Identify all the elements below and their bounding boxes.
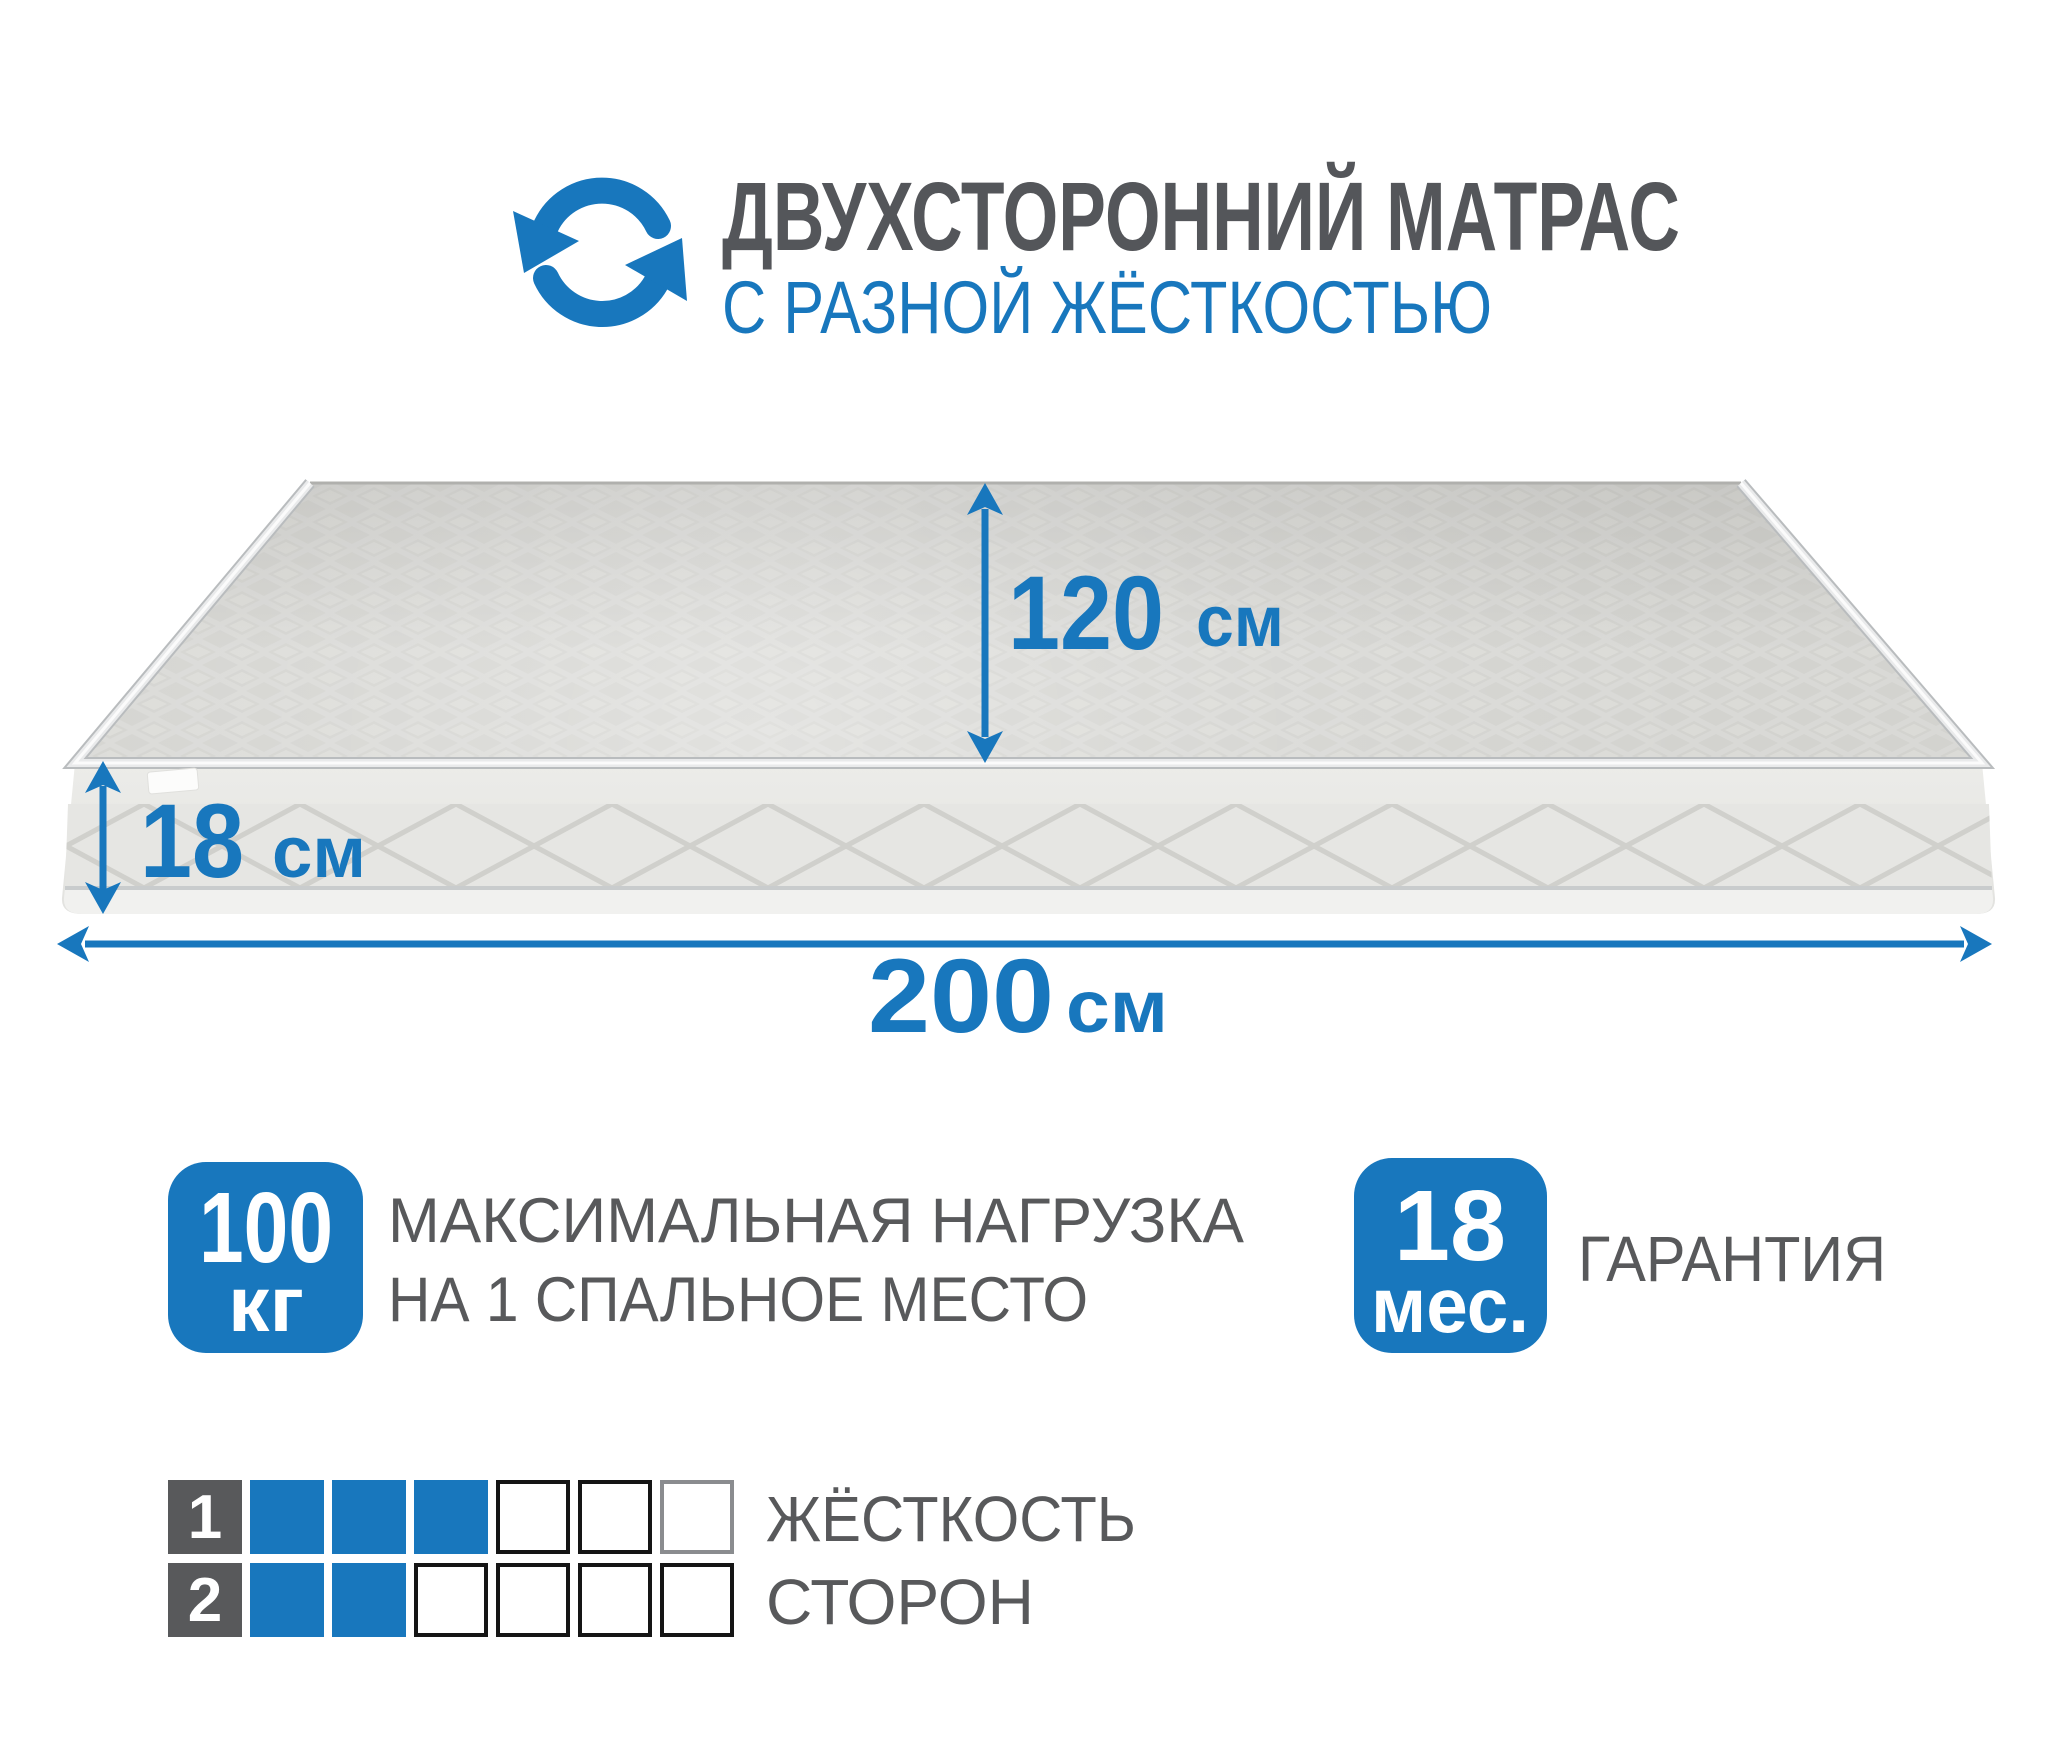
firmness-cell-filled: [250, 1563, 324, 1637]
firmness-row-number: 2: [188, 1566, 222, 1635]
rotate-arrows-icon: [513, 191, 687, 314]
dimension-width: 200 см: [57, 926, 1992, 1055]
warranty-feature: 18 мес. ГАРАНТИЯ: [1354, 1158, 1886, 1353]
max-load-feature: 100 кг МАКСИМАЛЬНАЯ НАГРУЗКА НА 1 СПАЛЬН…: [168, 1162, 1244, 1353]
firmness-row-number: 1: [188, 1483, 222, 1552]
firmness-cell-empty: [580, 1482, 650, 1552]
firmness-label-line2: СТОРОН: [766, 1566, 1034, 1638]
width-value: 200: [868, 938, 1054, 1055]
firmness-cell-empty: [416, 1565, 486, 1635]
height-value: 18: [140, 783, 244, 900]
max-load-unit: кг: [228, 1260, 304, 1348]
page-title: ДВУХСТОРОННИЙ МАТРАС: [722, 162, 1680, 271]
firmness-cell-empty: [662, 1482, 732, 1552]
firmness-cell-filled: [332, 1480, 406, 1554]
header: ДВУХСТОРОННИЙ МАТРАС С РАЗНОЙ ЖЁСТКОСТЬЮ: [513, 162, 1680, 349]
firmness-cell-empty: [580, 1565, 650, 1635]
warranty-unit: мес.: [1371, 1261, 1529, 1349]
height-unit: см: [272, 813, 366, 893]
firmness-cell-filled: [332, 1563, 406, 1637]
width-unit: см: [1066, 965, 1168, 1048]
mattress-infographic: ДВУХСТОРОННИЙ МАТРАС С РАЗНОЙ ЖЁСТКОСТЬЮ: [0, 0, 2048, 1757]
firmness-cell-empty: [498, 1565, 568, 1635]
firmness-label-line1: ЖЁСТКОСТЬ: [766, 1483, 1136, 1555]
firmness-cell-filled: [414, 1480, 488, 1554]
max-load-label-line2: НА 1 СПАЛЬНОЕ МЕСТО: [388, 1265, 1088, 1335]
firmness-cell-empty: [662, 1565, 732, 1635]
firmness-scale: 12 ЖЁСТКОСТЬ СТОРОН: [168, 1480, 1136, 1638]
page-subtitle: С РАЗНОЙ ЖЁСТКОСТЬЮ: [722, 266, 1492, 349]
max-load-label-line1: МАКСИМАЛЬНАЯ НАГРУЗКА: [388, 1186, 1244, 1256]
firmness-cells: 12: [168, 1480, 732, 1637]
warranty-label: ГАРАНТИЯ: [1578, 1223, 1886, 1295]
firmness-cell-empty: [498, 1482, 568, 1552]
depth-unit: см: [1196, 582, 1284, 662]
firmness-cell-filled: [250, 1480, 324, 1554]
depth-value: 120: [1008, 555, 1164, 672]
